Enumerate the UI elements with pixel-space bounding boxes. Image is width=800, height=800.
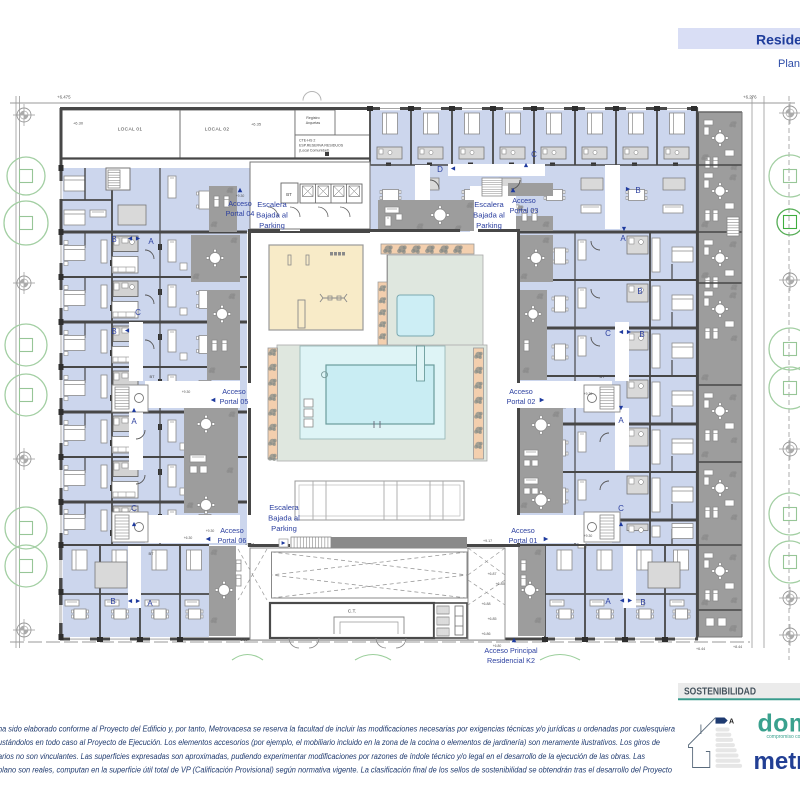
svg-text:+6.30: +6.30 — [73, 121, 84, 126]
svg-text:Parking: Parking — [259, 221, 285, 230]
svg-text:+9.30: +9.30 — [584, 534, 593, 538]
svg-text:+9.30: +9.30 — [236, 194, 245, 198]
svg-text:+9.30: +9.30 — [206, 529, 215, 533]
svg-text:C: C — [131, 504, 137, 513]
svg-text:arios no son vinculantes. Las: arios no son vinculantes. Las superficie… — [0, 752, 645, 761]
svg-text:+8.88: +8.88 — [238, 638, 247, 642]
svg-text:+6.475: +6.475 — [57, 95, 71, 100]
svg-text:Escalera: Escalera — [474, 200, 504, 209]
svg-text:ustándolos en todo caso al Pro: ustándolos en todo caso al Proyecto de E… — [0, 738, 660, 747]
svg-text:Portal 03: Portal 03 — [510, 206, 539, 215]
svg-text:B: B — [111, 327, 116, 336]
svg-text:B: B — [639, 330, 644, 339]
svg-text:compromiso contigo: compromiso contigo — [767, 734, 800, 740]
svg-text:+6.35: +6.35 — [251, 122, 262, 127]
svg-text:A: A — [620, 234, 626, 243]
svg-text:D: D — [437, 165, 443, 174]
svg-text:Residencial: Residencial — [756, 32, 800, 48]
svg-text:BT: BT — [149, 374, 155, 379]
svg-text:+9.17: +9.17 — [243, 231, 252, 235]
svg-text:BT: BT — [148, 551, 154, 556]
svg-text:BT: BT — [286, 192, 292, 197]
svg-text:+6.276: +6.276 — [743, 95, 757, 100]
svg-text:SOSTENIBILIDAD: SOSTENIBILIDAD — [684, 687, 756, 698]
svg-text:Acceso: Acceso — [220, 526, 244, 535]
svg-text:Registro: Registro — [306, 116, 319, 120]
svg-text:Bajada al: Bajada al — [473, 210, 505, 219]
svg-text:Residencial K2: Residencial K2 — [487, 656, 535, 665]
svg-text:Portal 06: Portal 06 — [218, 536, 247, 545]
svg-text:+9.30: +9.30 — [584, 392, 593, 396]
svg-text:A: A — [605, 597, 611, 606]
svg-text:CTE-HS 2: CTE-HS 2 — [299, 139, 315, 143]
svg-text:Portal 05: Portal 05 — [220, 397, 249, 406]
svg-text:+8.44: +8.44 — [733, 645, 742, 649]
svg-text:Escalera: Escalera — [257, 200, 287, 209]
svg-text:Portal 01: Portal 01 — [509, 536, 538, 545]
svg-text:A: A — [131, 417, 137, 426]
svg-text:+6.86: +6.86 — [481, 632, 490, 636]
svg-text:C: C — [605, 329, 611, 338]
svg-text:A: A — [148, 237, 154, 246]
svg-text:Parking: Parking — [271, 524, 297, 533]
svg-text:Acceso: Acceso — [222, 387, 246, 396]
svg-text:A: A — [147, 599, 153, 608]
svg-text:C: C — [135, 308, 141, 317]
svg-text:+9.30: +9.30 — [182, 390, 191, 394]
svg-text:Portal 02: Portal 02 — [507, 397, 536, 406]
svg-text:Escalera: Escalera — [269, 503, 299, 512]
svg-text:Portal 04: Portal 04 — [226, 209, 255, 218]
svg-text:B: B — [640, 598, 645, 607]
svg-text:(Local Comunidad): (Local Comunidad) — [299, 149, 329, 153]
svg-text:+6.44: +6.44 — [696, 647, 705, 651]
svg-text:Acceso Principal: Acceso Principal — [484, 646, 538, 655]
svg-text:Arquetas: Arquetas — [306, 121, 321, 125]
svg-text:LOCAL 01: LOCAL 01 — [118, 127, 143, 133]
svg-text:+6.30: +6.30 — [184, 536, 193, 540]
svg-text:Bajada al: Bajada al — [268, 513, 300, 522]
svg-text:ESP.RESERVA RESIDUOS: ESP.RESERVA RESIDUOS — [299, 144, 344, 148]
svg-text:+6.85: +6.85 — [487, 617, 496, 621]
svg-text:BT: BT — [599, 374, 605, 379]
svg-text:Acceso: Acceso — [512, 196, 536, 205]
svg-text:C: C — [618, 504, 624, 513]
svg-text:+6.85: +6.85 — [495, 582, 504, 586]
svg-text:+6.87: +6.87 — [487, 572, 496, 576]
svg-text:B: B — [111, 235, 116, 244]
svg-text:Acceso: Acceso — [228, 199, 252, 208]
svg-text:ha sido elaborado conforme al: ha sido elaborado conforme al Proyecto d… — [0, 725, 676, 734]
svg-text:C.T.: C.T. — [348, 609, 357, 615]
svg-text:plano son reales, computan en: plano son reales, computan en la superfi… — [0, 766, 672, 775]
svg-text:B: B — [635, 186, 640, 195]
svg-text:+6.88: +6.88 — [481, 602, 490, 606]
svg-text:Planta: Planta — [778, 58, 800, 70]
svg-text:Parking: Parking — [476, 221, 502, 230]
svg-text:A: A — [729, 719, 734, 726]
svg-text:B: B — [110, 597, 115, 606]
svg-text:A: A — [618, 416, 624, 425]
svg-text:Acceso: Acceso — [511, 526, 535, 535]
svg-text:+9.17: +9.17 — [483, 539, 492, 543]
svg-text:metrovacesa: metrovacesa — [754, 748, 800, 775]
svg-text:Acceso: Acceso — [509, 387, 533, 396]
svg-text:LOCAL 02: LOCAL 02 — [205, 127, 230, 133]
svg-text:C: C — [531, 150, 537, 159]
svg-text:B: B — [637, 287, 642, 296]
svg-text:Bajada al: Bajada al — [256, 210, 288, 219]
